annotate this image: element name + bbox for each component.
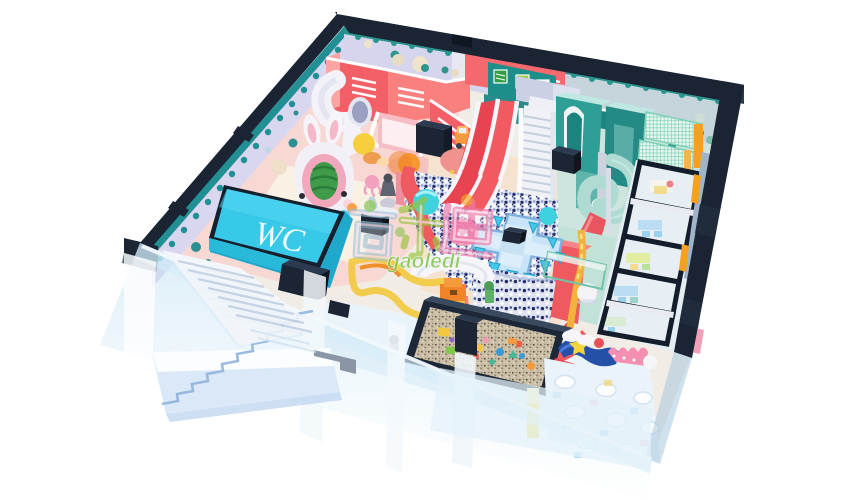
- svg-text:gaoledi: gaoledi: [386, 250, 462, 273]
